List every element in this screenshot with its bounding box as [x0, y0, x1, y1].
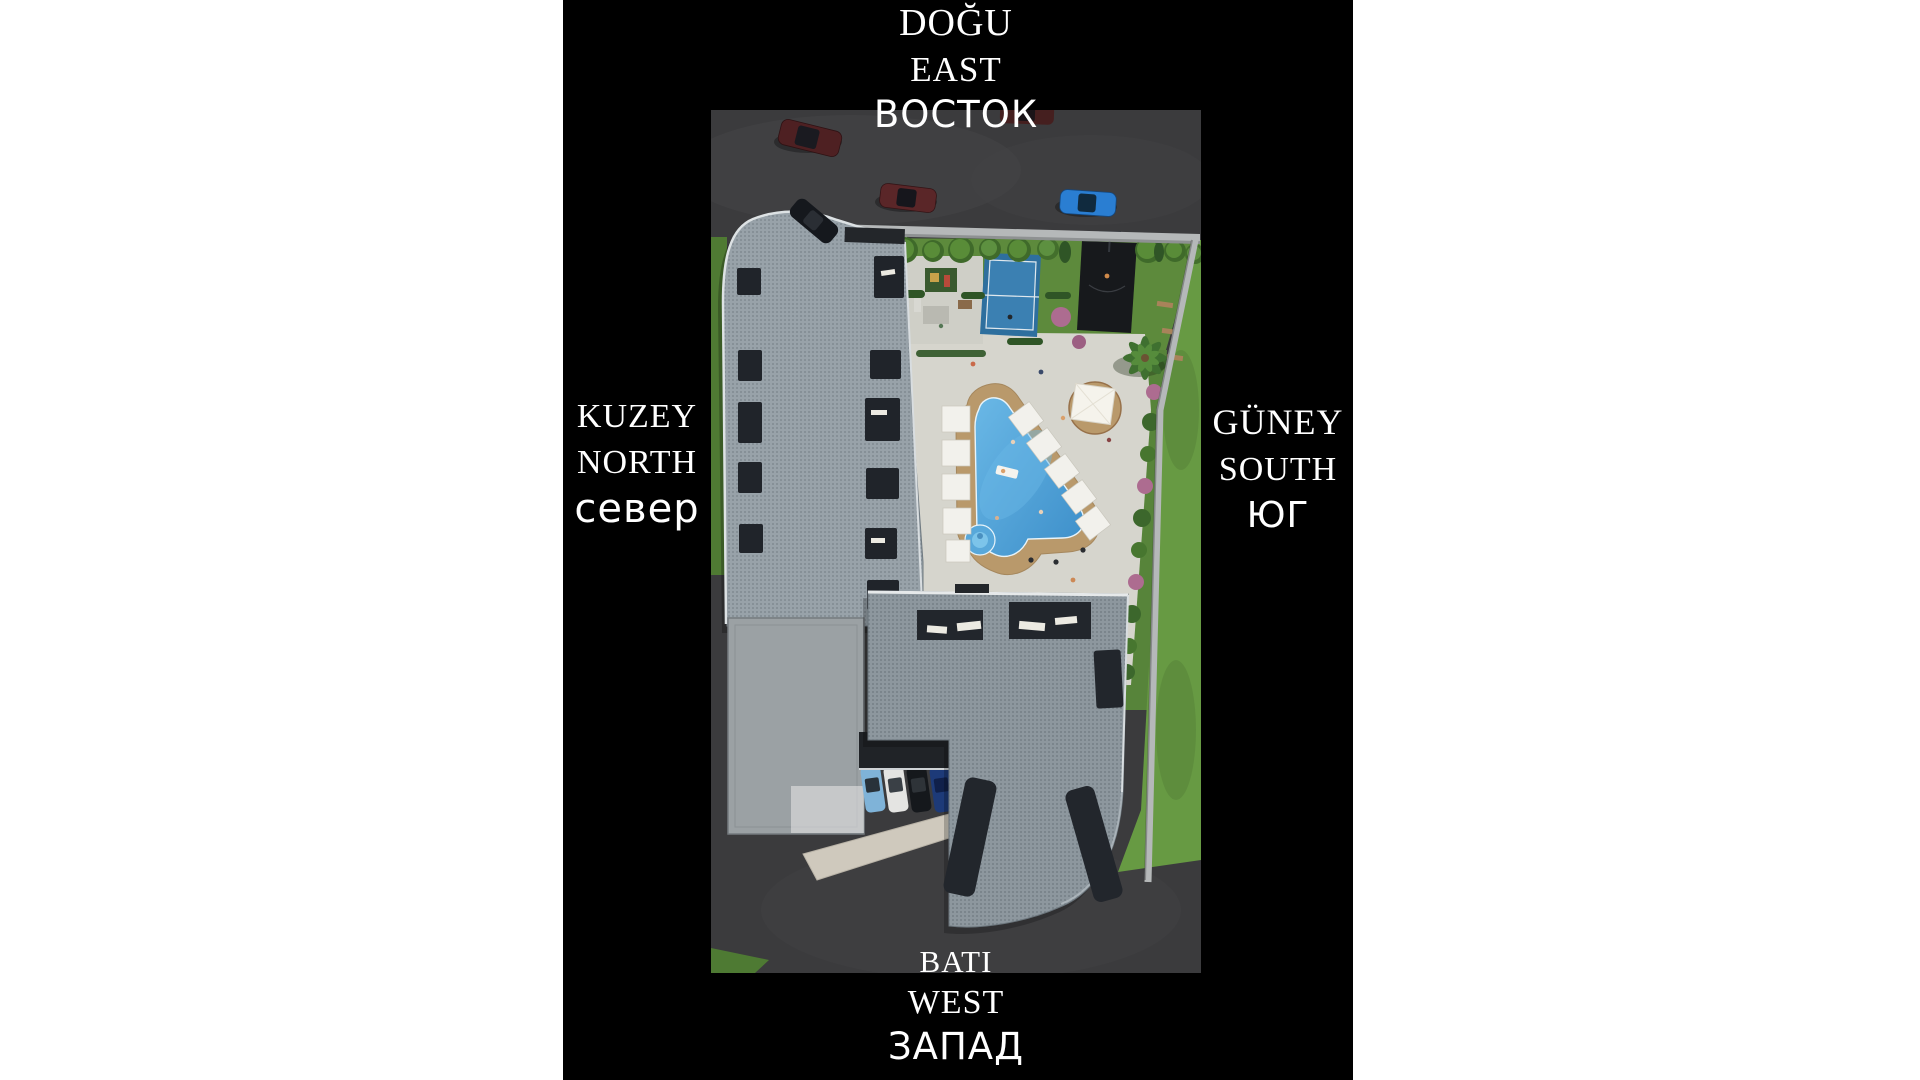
site-plan-render — [711, 110, 1201, 973]
east-english: EAST — [711, 52, 1201, 87]
north-english: NORTH — [564, 446, 710, 480]
flat-roof-annex — [728, 618, 864, 834]
west-turkish: BATI — [711, 946, 1201, 977]
gazebo — [1069, 382, 1121, 434]
basketball-court — [1077, 231, 1137, 333]
tennis-court — [980, 253, 1041, 337]
compass-label-east: DOĞU EAST ВОСТОК — [711, 4, 1201, 133]
west-english: WEST — [711, 986, 1201, 1020]
south-english: SOUTH — [1203, 453, 1353, 487]
north-building — [718, 212, 923, 633]
entrance-canopy — [844, 227, 904, 244]
east-russian: ВОСТОК — [711, 96, 1201, 133]
compass-label-north: KUZEY NORTH север — [564, 400, 710, 529]
south-russian: ЮГ — [1203, 498, 1353, 534]
site-plan-svg — [711, 110, 1201, 973]
compass-label-south: GÜNEY SOUTH ЮГ — [1203, 404, 1353, 534]
east-turkish: DOĞU — [711, 4, 1201, 42]
west-russian: ЗАПАД — [711, 1028, 1201, 1065]
compass-label-west: BATI WEST ЗАПАД — [711, 946, 1201, 1065]
south-turkish: GÜNEY — [1203, 404, 1353, 440]
north-russian: север — [564, 489, 710, 529]
north-turkish: KUZEY — [564, 400, 710, 434]
car-blue-sedan — [1055, 189, 1117, 217]
